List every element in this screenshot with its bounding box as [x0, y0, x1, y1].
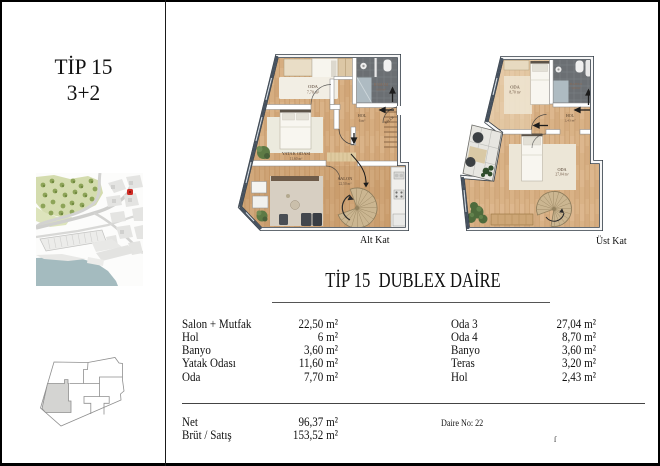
svg-text:ODA: ODA — [510, 85, 520, 90]
svg-text:ODA: ODA — [308, 84, 319, 89]
svg-text:6 m²: 6 m² — [359, 119, 366, 123]
svg-text:YATAK ODASI: YATAK ODASI — [282, 151, 311, 156]
svg-text:HOL: HOL — [566, 113, 575, 118]
svg-text:HAMAM: HAMAM — [374, 83, 389, 87]
svg-text:ODA: ODA — [557, 167, 566, 172]
svg-text:HOL: HOL — [358, 113, 367, 118]
